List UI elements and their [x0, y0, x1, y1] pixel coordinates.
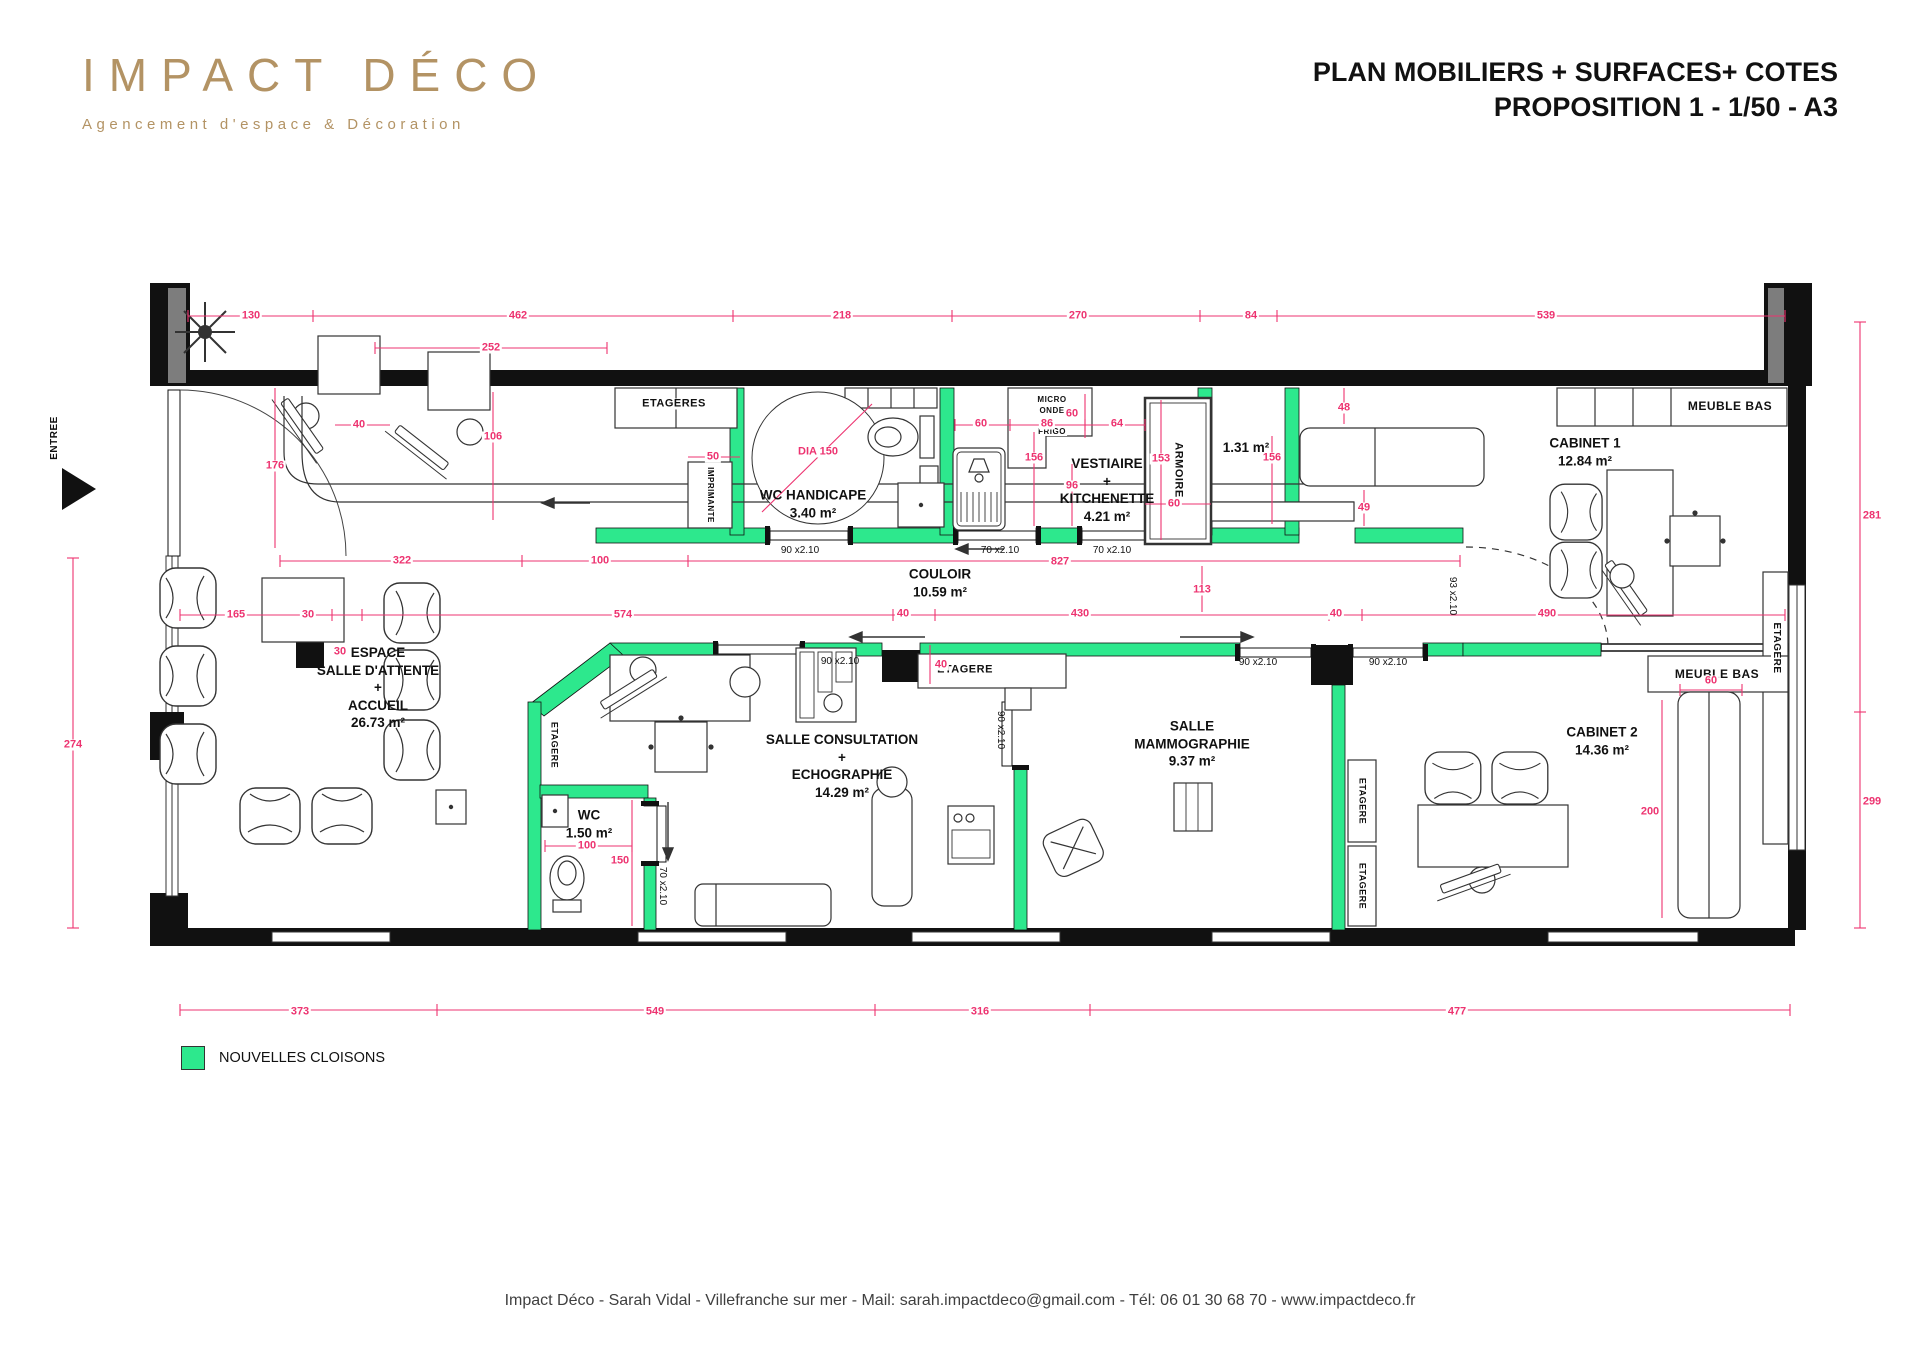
entrance-arrow-icon	[62, 468, 96, 510]
legend-label: NOUVELLES CLOISONS	[219, 1050, 385, 1066]
legend: NOUVELLES CLOISONS	[181, 1046, 385, 1070]
floor-plan-svg	[0, 0, 1920, 1353]
plant-icon	[175, 302, 235, 362]
floor-plan: ESPACESALLE D'ATTENTE+ACCUEIL26.73 m²WC …	[0, 0, 1920, 1353]
legend-green-swatch	[181, 1046, 205, 1070]
furniture	[160, 302, 1788, 926]
footer-contact: Impact Déco - Sarah Vidal - Villefranche…	[0, 1292, 1920, 1310]
